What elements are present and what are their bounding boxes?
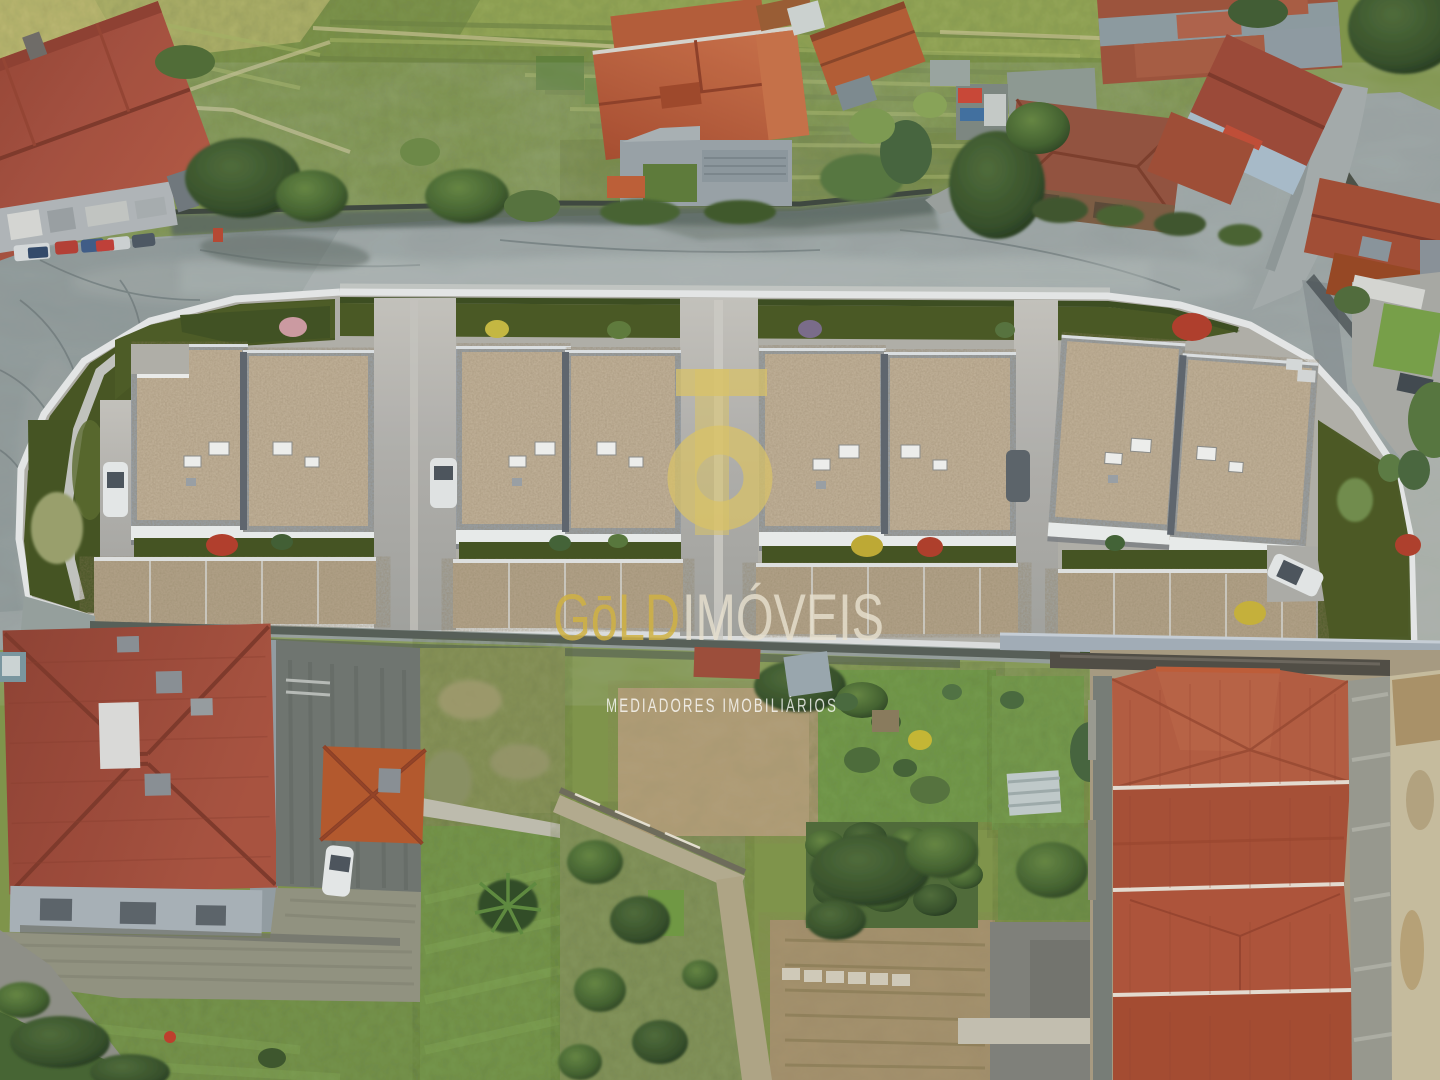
svg-text:IMÓVEIS: IMÓVEIS [682, 580, 884, 654]
svg-text:MEDIADORES IMOBILIÁRIOS: MEDIADORES IMOBILIÁRIOS [606, 696, 838, 717]
svg-text:GōLD: GōLD [553, 580, 680, 654]
